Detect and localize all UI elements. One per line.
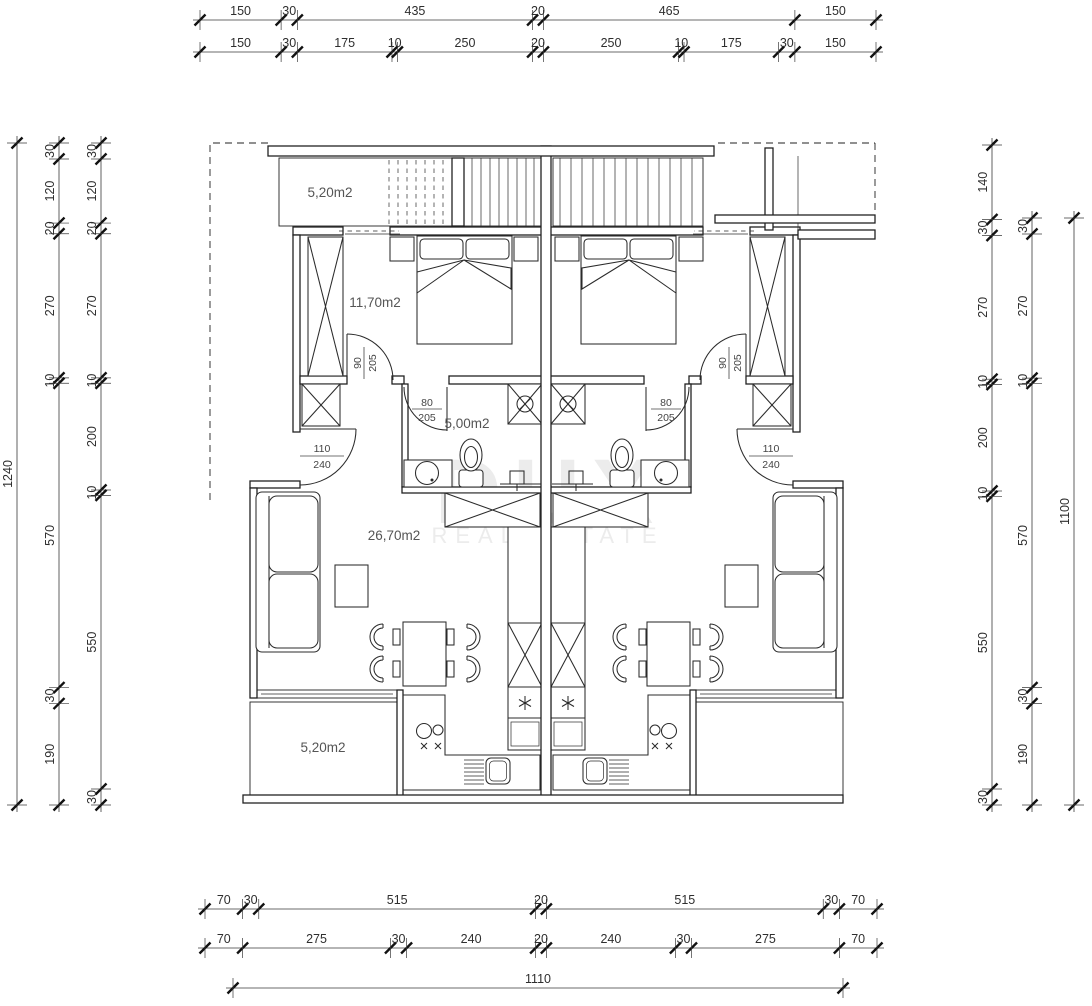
dim-chain-right-outer: 1100 <box>1058 211 1084 812</box>
svg-text:140: 140 <box>976 172 990 193</box>
door-label-bedroom-left: 90 205 <box>352 347 379 379</box>
dim-chain-left-inner: 3012020270102001055030 <box>85 136 111 812</box>
svg-text:175: 175 <box>334 36 355 50</box>
svg-text:20: 20 <box>531 4 545 18</box>
nightstand <box>514 237 538 261</box>
svg-text:200: 200 <box>976 427 990 448</box>
svg-text:70: 70 <box>217 893 231 907</box>
svg-text:205: 205 <box>367 354 379 372</box>
svg-text:30: 30 <box>1016 219 1030 233</box>
svg-text:80: 80 <box>660 397 672 409</box>
svg-text:120: 120 <box>43 181 57 202</box>
bathroom-sink <box>404 460 452 487</box>
dim-chain-bottom-total: 1110 <box>226 972 850 998</box>
dim-chain-bottom-inner: 7030515205153070 <box>198 893 884 919</box>
hall-wardrobe <box>445 493 540 527</box>
svg-text:515: 515 <box>387 893 408 907</box>
door-label-entry-left: 110 240 <box>300 443 344 471</box>
svg-text:515: 515 <box>674 893 695 907</box>
svg-text:70: 70 <box>851 893 865 907</box>
wardrobe <box>308 237 343 376</box>
svg-text:30: 30 <box>244 893 258 907</box>
svg-text:150: 150 <box>230 36 251 50</box>
svg-text:465: 465 <box>659 4 680 18</box>
svg-text:20: 20 <box>43 221 57 235</box>
svg-text:550: 550 <box>85 632 99 653</box>
stair-wall <box>452 158 464 226</box>
svg-text:30: 30 <box>677 932 691 946</box>
svg-text:270: 270 <box>976 297 990 318</box>
door-label-bedroom-right: 90 205 <box>717 347 744 379</box>
party-wall <box>541 146 551 798</box>
svg-text:30: 30 <box>282 36 296 50</box>
svg-text:570: 570 <box>1016 525 1030 546</box>
stairs-dashed <box>389 160 443 225</box>
dim-chain-bottom-mid: 7027530240202403027570 <box>198 932 884 958</box>
svg-text:30: 30 <box>43 689 57 703</box>
svg-text:240: 240 <box>461 932 482 946</box>
svg-text:270: 270 <box>43 295 57 316</box>
kitchen-column <box>508 527 542 750</box>
svg-text:205: 205 <box>657 412 675 424</box>
svg-text:10: 10 <box>674 36 688 50</box>
door-label-bath-right: 80 205 <box>651 397 681 424</box>
svg-text:570: 570 <box>43 525 57 546</box>
svg-text:10: 10 <box>388 36 402 50</box>
room-label-bathroom: 5,00m2 <box>444 416 489 431</box>
svg-text:175: 175 <box>721 36 742 50</box>
floorplan-page: DUX REAL ESTATE <box>0 0 1092 1006</box>
svg-text:20: 20 <box>85 221 99 235</box>
svg-text:30: 30 <box>824 893 838 907</box>
svg-text:30: 30 <box>282 4 296 18</box>
stairs-right-flight <box>553 158 703 226</box>
svg-text:20: 20 <box>531 36 545 50</box>
svg-text:110: 110 <box>763 443 780 455</box>
dish-drainer <box>464 760 484 784</box>
svg-text:150: 150 <box>230 4 251 18</box>
dim-chain-left-mid: 30120202701057030190 <box>43 136 69 812</box>
svg-text:240: 240 <box>313 459 331 471</box>
svg-text:190: 190 <box>43 744 57 765</box>
svg-text:30: 30 <box>85 144 99 158</box>
stairs-left-flight <box>464 158 541 226</box>
floorplan-svg: DUX REAL ESTATE <box>0 0 1092 1006</box>
svg-text:275: 275 <box>306 932 327 946</box>
svg-text:10: 10 <box>976 375 990 389</box>
entry-shaft <box>302 384 340 426</box>
svg-text:70: 70 <box>217 932 231 946</box>
svg-text:30: 30 <box>1016 689 1030 703</box>
svg-text:1240: 1240 <box>1 460 15 488</box>
svg-text:30: 30 <box>43 144 57 158</box>
dim-chain-left-outer: 1240 <box>1 136 27 812</box>
apartment-unit <box>250 227 543 796</box>
svg-text:70: 70 <box>851 932 865 946</box>
room-label-living: 26,70m2 <box>368 528 421 543</box>
svg-text:80: 80 <box>421 397 433 409</box>
svg-text:250: 250 <box>601 36 622 50</box>
svg-text:240: 240 <box>600 932 621 946</box>
svg-text:30: 30 <box>976 221 990 235</box>
living-window <box>257 690 397 698</box>
svg-text:240: 240 <box>762 459 780 471</box>
svg-text:10: 10 <box>43 374 57 388</box>
svg-text:205: 205 <box>732 354 744 372</box>
svg-text:150: 150 <box>825 36 846 50</box>
toilet <box>459 439 483 487</box>
svg-text:30: 30 <box>976 790 990 804</box>
svg-text:10: 10 <box>1016 374 1030 388</box>
svg-text:20: 20 <box>534 932 548 946</box>
washing-machine <box>508 384 542 424</box>
svg-text:1110: 1110 <box>525 972 551 986</box>
entry-door <box>300 429 356 485</box>
svg-text:110: 110 <box>314 443 331 455</box>
room-label-bedroom: 11,70m2 <box>349 295 401 310</box>
svg-text:550: 550 <box>976 632 990 653</box>
svg-text:30: 30 <box>780 36 794 50</box>
svg-text:30: 30 <box>392 932 406 946</box>
room-label-balcony-top: 5,20m2 <box>307 185 352 200</box>
room-label-terrace-bottom: 5,20m2 <box>300 740 345 755</box>
nightstand <box>390 237 414 261</box>
svg-text:270: 270 <box>85 295 99 316</box>
door-label-bath-left: 80 205 <box>412 397 442 424</box>
coffee-table <box>335 565 368 607</box>
svg-text:250: 250 <box>455 36 476 50</box>
svg-text:1100: 1100 <box>1058 498 1072 525</box>
svg-text:205: 205 <box>418 412 436 424</box>
dim-chain-top-inner: 1503017510250202501017530150 <box>193 36 883 62</box>
svg-text:270: 270 <box>1016 296 1030 317</box>
svg-text:10: 10 <box>976 487 990 501</box>
svg-text:10: 10 <box>85 374 99 388</box>
apartment-unit-right <box>550 227 843 796</box>
svg-text:90: 90 <box>352 357 364 369</box>
svg-text:275: 275 <box>755 932 776 946</box>
svg-text:30: 30 <box>85 790 99 804</box>
door-label-entry-right: 110 240 <box>749 443 793 471</box>
cooktop <box>417 724 444 750</box>
sofa <box>256 492 320 652</box>
bed <box>390 236 538 344</box>
dim-chain-right-mid: 302701057030190 <box>1016 211 1042 812</box>
svg-text:150: 150 <box>825 4 846 18</box>
dim-chain-right-inner: 14030270102001055030 <box>976 138 1002 812</box>
svg-text:190: 190 <box>1016 744 1030 765</box>
dining-table <box>403 622 446 686</box>
top-balcony <box>279 158 452 226</box>
svg-text:435: 435 <box>405 4 426 18</box>
svg-text:20: 20 <box>534 893 548 907</box>
dim-chain-top-outer: 1503043520465150 <box>193 4 883 30</box>
svg-text:90: 90 <box>717 357 729 369</box>
svg-text:120: 120 <box>85 181 99 202</box>
kitchen-sink <box>486 758 510 784</box>
svg-text:10: 10 <box>85 486 99 500</box>
svg-text:200: 200 <box>85 426 99 447</box>
